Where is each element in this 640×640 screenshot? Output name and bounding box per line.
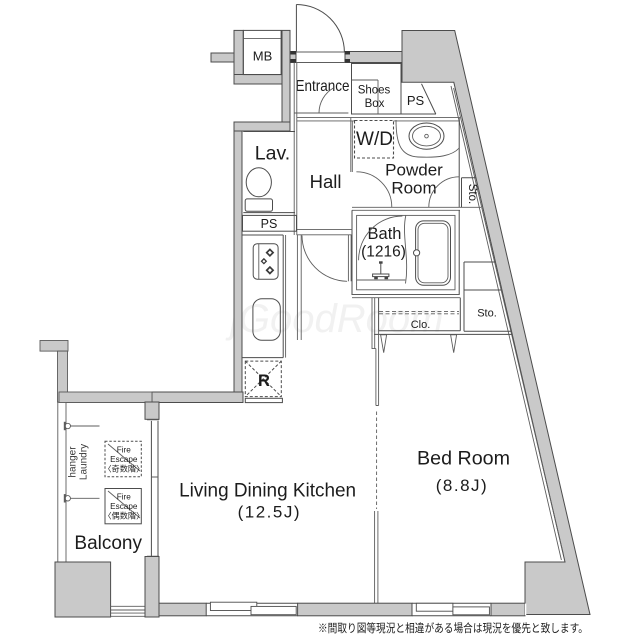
svg-text:※間取り図等現況と相違がある場合は現況を優先と致します。: ※間取り図等現況と相違がある場合は現況を優先と致します。 [318, 621, 588, 635]
svg-text:W/D: W/D [356, 129, 393, 150]
svg-text:Bed Room: Bed Room [417, 448, 510, 470]
svg-text:Box: Box [365, 98, 385, 110]
svg-text:Clo.: Clo. [411, 319, 431, 331]
svg-text:〈奇数階〉: 〈奇数階〉 [103, 464, 144, 474]
svg-text:Balcony: Balcony [74, 533, 142, 554]
svg-text:PS: PS [407, 93, 425, 108]
svg-text:hanger: hanger [68, 446, 79, 478]
svg-text:Lav.: Lav. [255, 143, 290, 165]
svg-text:(12.5J): (12.5J) [238, 503, 301, 522]
svg-text:Laundry: Laundry [79, 444, 90, 480]
svg-text:Escape: Escape [110, 502, 138, 511]
svg-text:Fire: Fire [117, 493, 132, 502]
svg-text:Sto.: Sto. [466, 184, 478, 204]
svg-text:(1216): (1216) [361, 244, 406, 261]
svg-text:R: R [258, 372, 270, 390]
svg-text:Entrance: Entrance [296, 78, 350, 95]
svg-text:Hall: Hall [310, 171, 342, 192]
svg-text:(8.8J): (8.8J) [436, 476, 488, 495]
svg-text:Fire: Fire [117, 446, 132, 455]
svg-text:Escape: Escape [110, 455, 138, 464]
svg-text:Room: Room [391, 179, 436, 198]
svg-text:Living Dining Kitchen: Living Dining Kitchen [179, 481, 356, 502]
svg-text:Sto.: Sto. [477, 308, 497, 320]
svg-text:MB: MB [253, 49, 273, 64]
svg-text:Powder: Powder [385, 161, 443, 180]
svg-text:Shoes: Shoes [358, 85, 391, 97]
svg-text:PS: PS [261, 217, 278, 231]
svg-text:〈偶数階〉: 〈偶数階〉 [103, 511, 144, 521]
